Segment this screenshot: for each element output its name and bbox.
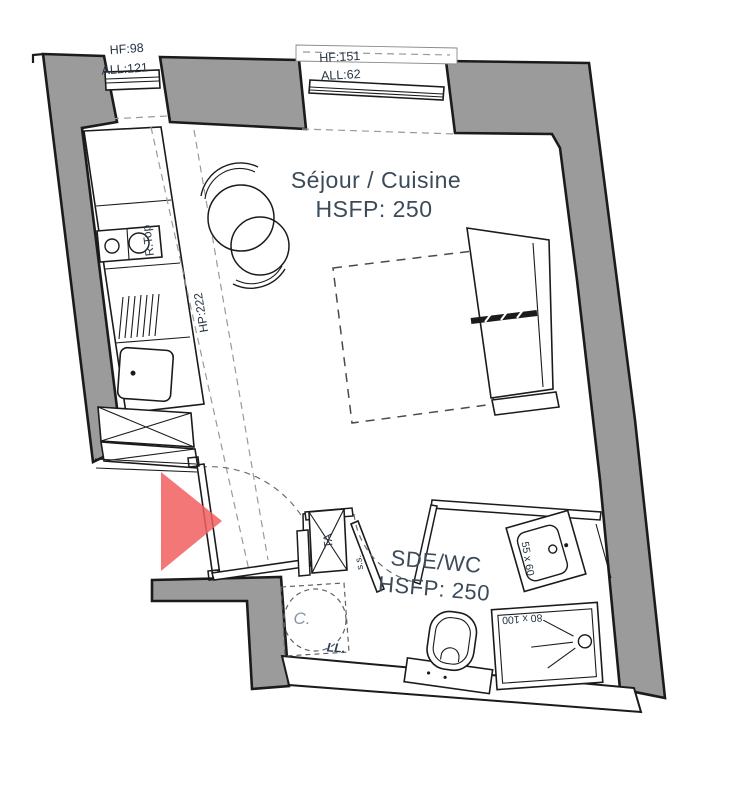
- window-1-height-label: HF:98: [109, 41, 144, 57]
- water-heater-label: C.: [294, 609, 311, 628]
- shower: 80 x 100: [491, 602, 602, 689]
- top-wall-pier: [160, 57, 306, 129]
- floor-plan-page: R.Top HP:222: [0, 0, 732, 800]
- electrical-panel-label: TA: [320, 533, 336, 549]
- panel-side-box: [297, 530, 310, 576]
- washing-machine-label: LL.: [326, 640, 346, 655]
- sink-basin: [117, 347, 173, 402]
- window-2-sill-label: ALL:62: [321, 67, 361, 83]
- living-room-height-label: HSFP: 250: [316, 196, 433, 222]
- window-2-height-label: HF:151: [319, 49, 361, 65]
- living-room-label: Séjour / Cuisine: [291, 167, 461, 193]
- floor-plan-drawing: R.Top HP:222: [0, 0, 732, 800]
- entry-closet: [98, 407, 198, 468]
- kitchen-sink: [117, 347, 173, 402]
